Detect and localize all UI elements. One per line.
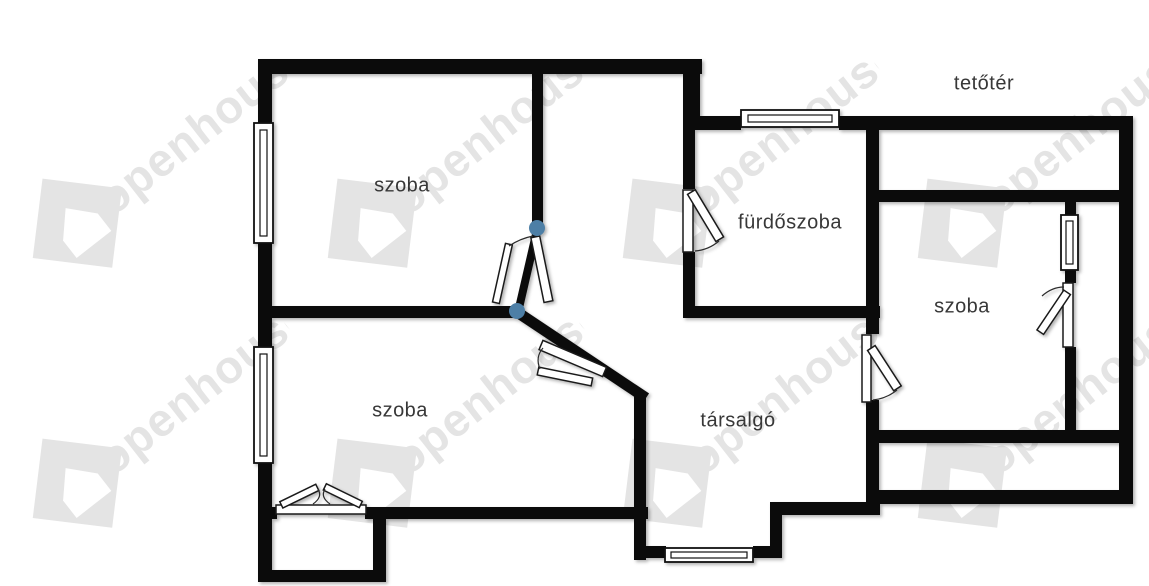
floorplan-image: openhouse openhouse openhouse openhouse … [0,0,1149,586]
bathroom-label: fürdőszoba [738,212,842,235]
room-right-label: szoba [934,296,990,319]
room-bottom-left-label: szoba [372,400,428,423]
labels-layer: tetőtér szoba fürdőszoba szoba szoba tár… [0,0,1149,586]
lounge-label: társalgó [700,410,775,433]
attic-label: tetőtér [954,73,1014,96]
room-top-left-label: szoba [374,175,430,198]
